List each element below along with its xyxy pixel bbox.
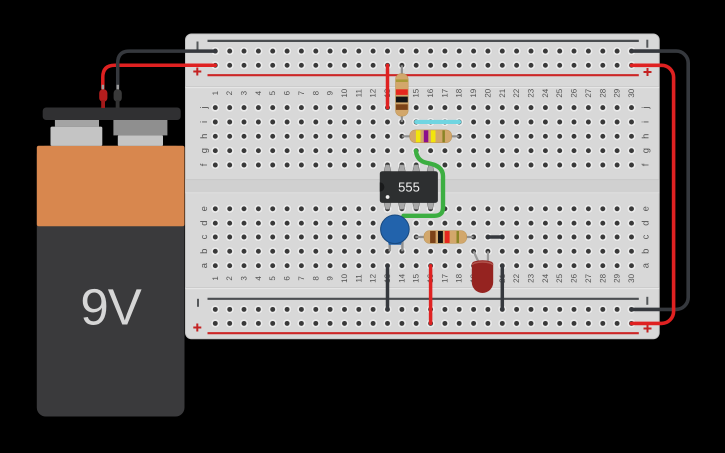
svg-text:18: 18 [455, 273, 464, 282]
svg-text:11: 11 [354, 274, 363, 283]
svg-text:12: 12 [369, 88, 378, 97]
svg-text:7: 7 [297, 90, 306, 95]
svg-text:8: 8 [311, 90, 320, 95]
svg-text:12: 12 [369, 273, 378, 282]
svg-text:e: e [639, 206, 650, 211]
svg-text:25: 25 [555, 88, 564, 97]
svg-text:29: 29 [613, 88, 622, 97]
svg-text:b: b [639, 249, 650, 254]
svg-text:26: 26 [570, 88, 579, 97]
svg-text:h: h [198, 134, 209, 139]
svg-text:9: 9 [326, 90, 335, 95]
svg-text:11: 11 [354, 89, 363, 98]
svg-text:3: 3 [240, 90, 249, 95]
svg-text:9: 9 [326, 276, 335, 281]
svg-text:f: f [639, 163, 650, 166]
svg-text:555: 555 [398, 180, 420, 195]
svg-text:9V: 9V [80, 279, 141, 336]
svg-text:17: 17 [440, 273, 449, 282]
svg-text:g: g [639, 148, 650, 153]
svg-text:i: i [198, 121, 209, 123]
svg-text:22: 22 [512, 88, 521, 97]
svg-text:g: g [198, 148, 209, 153]
svg-text:i: i [639, 121, 650, 123]
svg-text:23: 23 [527, 273, 536, 282]
svg-text:b: b [198, 249, 209, 254]
svg-text:c: c [198, 234, 209, 239]
svg-text:14: 14 [397, 273, 406, 282]
svg-text:8: 8 [311, 276, 320, 281]
svg-text:2: 2 [225, 90, 234, 95]
svg-text:20: 20 [483, 88, 492, 97]
svg-text:18: 18 [455, 88, 464, 97]
svg-text:21: 21 [498, 88, 507, 97]
svg-text:4: 4 [254, 276, 263, 281]
svg-text:j: j [639, 107, 650, 110]
svg-text:a: a [198, 262, 209, 268]
svg-text:17: 17 [440, 88, 449, 97]
svg-text:a: a [639, 262, 650, 268]
svg-text:28: 28 [598, 88, 607, 97]
svg-text:15: 15 [412, 88, 421, 97]
svg-text:4: 4 [254, 90, 263, 95]
svg-text:15: 15 [412, 273, 421, 282]
svg-text:2: 2 [225, 276, 234, 281]
svg-text:29: 29 [613, 273, 622, 282]
svg-text:5: 5 [268, 276, 277, 281]
svg-text:f: f [198, 163, 209, 166]
svg-text:6: 6 [283, 276, 292, 281]
svg-text:1: 1 [211, 276, 220, 281]
svg-text:e: e [198, 206, 209, 211]
svg-text:23: 23 [527, 88, 536, 97]
svg-text:30: 30 [627, 88, 636, 97]
svg-text:10: 10 [340, 88, 349, 97]
svg-text:d: d [639, 221, 650, 226]
svg-text:27: 27 [584, 273, 593, 282]
svg-text:10: 10 [340, 273, 349, 282]
svg-text:26: 26 [570, 273, 579, 282]
svg-text:24: 24 [541, 88, 550, 97]
svg-text:3: 3 [240, 276, 249, 281]
svg-text:28: 28 [598, 273, 607, 282]
svg-text:d: d [198, 221, 209, 226]
svg-text:19: 19 [469, 88, 478, 97]
svg-text:1: 1 [211, 90, 220, 95]
svg-text:j: j [198, 107, 209, 110]
svg-text:16: 16 [426, 88, 435, 97]
svg-text:27: 27 [584, 88, 593, 97]
svg-text:h: h [639, 134, 650, 139]
svg-text:6: 6 [283, 90, 292, 95]
svg-text:5: 5 [268, 90, 277, 95]
svg-text:22: 22 [512, 273, 521, 282]
svg-text:30: 30 [627, 273, 636, 282]
svg-text:7: 7 [297, 276, 306, 281]
svg-text:25: 25 [555, 273, 564, 282]
svg-text:c: c [639, 234, 650, 239]
svg-text:24: 24 [541, 273, 550, 282]
